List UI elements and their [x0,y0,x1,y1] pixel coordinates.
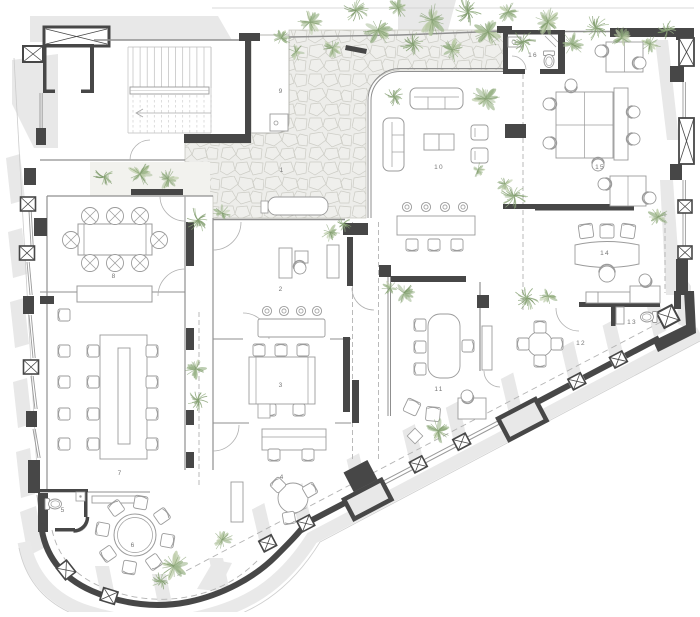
svg-text:9: 9 [279,88,284,95]
svg-text:11: 11 [434,386,443,393]
svg-text:4: 4 [280,474,285,481]
svg-text:12: 12 [576,340,586,347]
svg-text:7: 7 [118,470,123,477]
svg-text:10: 10 [434,164,444,171]
svg-text:6: 6 [131,542,136,549]
svg-text:14: 14 [600,250,610,257]
svg-text:2: 2 [279,286,284,293]
svg-text:1: 1 [280,167,285,174]
svg-text:15: 15 [595,164,605,171]
svg-text:13: 13 [627,319,637,326]
svg-text:8: 8 [112,273,117,280]
svg-text:5: 5 [61,507,66,514]
svg-text:16: 16 [528,52,538,59]
svg-text:3: 3 [279,382,284,389]
